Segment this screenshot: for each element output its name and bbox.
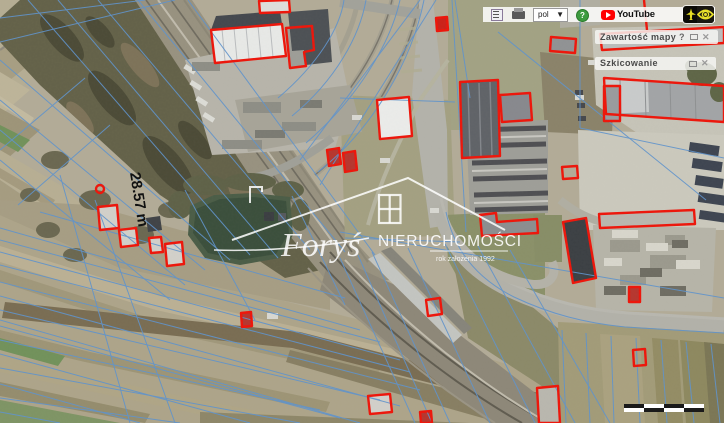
- svg-text:NIERUCHOMOŚCI: NIERUCHOMOŚCI: [378, 232, 522, 250]
- svg-text:rok założenia 1992: rok założenia 1992: [436, 256, 495, 263]
